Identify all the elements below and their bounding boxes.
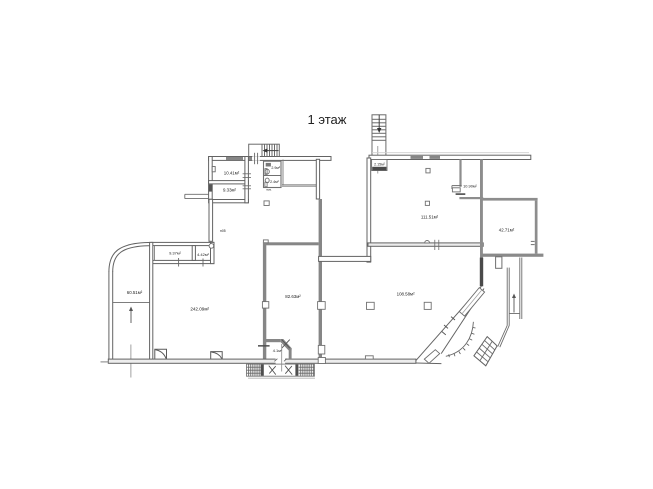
svg-text:242.09м²: 242.09м² (190, 307, 209, 312)
svg-text:82.63м²: 82.63м² (285, 294, 301, 299)
svg-text:108.58м²: 108.58м² (397, 292, 415, 297)
svg-text:9.37м²: 9.37м² (169, 250, 182, 255)
svg-text:2.15м²: 2.15м² (374, 163, 385, 167)
svg-text:1 этаж: 1 этаж (308, 112, 347, 127)
svg-text:н05: н05 (220, 229, 226, 233)
svg-text:пом.: пом. (266, 188, 272, 192)
svg-text:2.4м²: 2.4м² (270, 180, 279, 184)
svg-text:9.33м²: 9.33м² (223, 187, 237, 192)
svg-text:10.90м²: 10.90м² (463, 183, 477, 188)
svg-text:10.41м²: 10.41м² (224, 170, 240, 175)
svg-text:42.71м²: 42.71м² (499, 227, 515, 232)
svg-text:60.51м²: 60.51м² (127, 290, 143, 295)
svg-text:4.42м²: 4.42м² (197, 252, 210, 257)
svg-text:111.51м²: 111.51м² (421, 214, 439, 219)
svg-text:2.9м²: 2.9м² (271, 166, 280, 170)
